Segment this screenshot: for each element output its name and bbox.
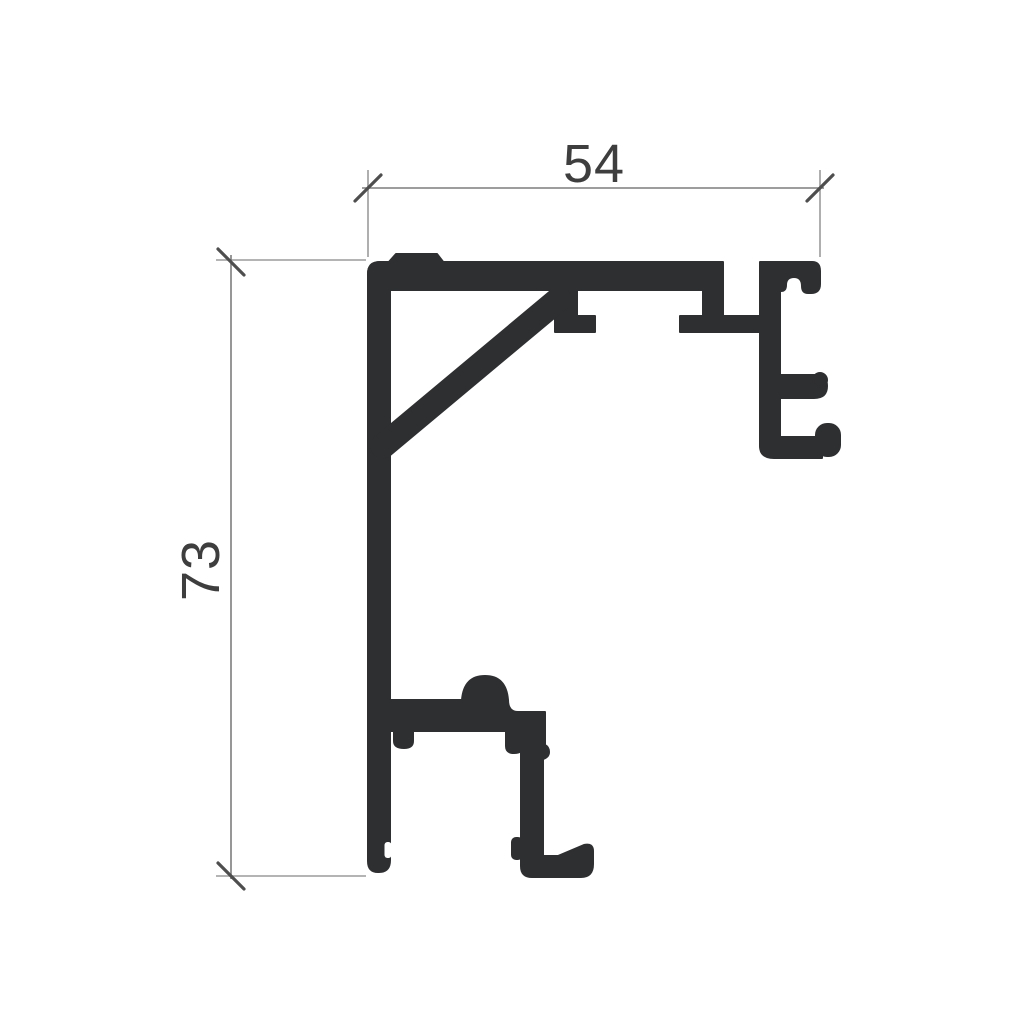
diagonal-web [383, 299, 559, 446]
top-flange [368, 262, 723, 290]
left-wall [368, 262, 390, 872]
drip-hook-lower-tip [816, 424, 840, 456]
drawing-canvas: 54 73 [0, 0, 1024, 1024]
aluminum-profile-shape [368, 254, 840, 877]
bottom-leg [521, 712, 549, 860]
shelf-tooth-left [394, 731, 413, 748]
wall-notch-cut [385, 842, 392, 858]
height-dimension: 73 [171, 249, 366, 889]
drip-hook-upper-tip [813, 373, 827, 387]
glazing-tab-right-connector [680, 287, 766, 332]
top-clip-hook [780, 262, 820, 293]
width-dimension: 54 [355, 134, 833, 257]
height-dimension-label: 73 [171, 539, 231, 601]
width-dimension-label: 54 [563, 134, 625, 194]
profile-technical-drawing: 54 73 [0, 0, 1024, 1024]
top-lip [388, 254, 444, 263]
drip-hook-lower-jaw [760, 425, 822, 458]
